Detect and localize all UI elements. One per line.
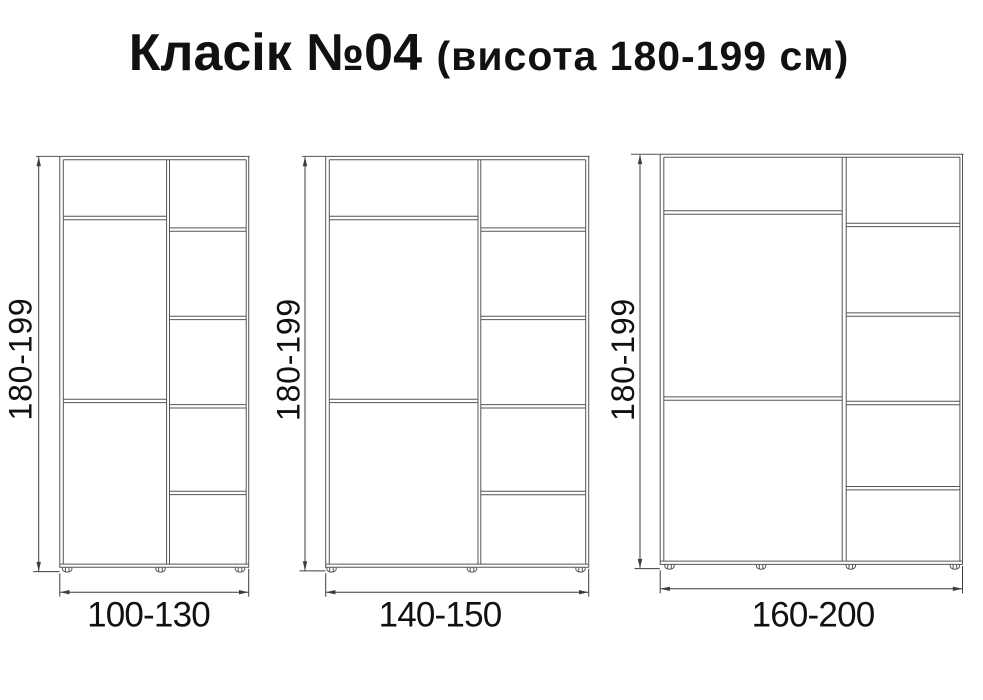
svg-text:100-130: 100-130 [87,596,210,635]
svg-text:140-150: 140-150 [379,596,502,635]
svg-text:180-199: 180-199 [3,297,39,420]
svg-text:160-200: 160-200 [752,596,875,635]
svg-text:180-199: 180-199 [605,298,641,421]
svg-text:180-199: 180-199 [270,298,306,421]
svg-text:Класік №04 (висота 180-199 см): Класік №04 (висота 180-199 см) [129,24,850,82]
